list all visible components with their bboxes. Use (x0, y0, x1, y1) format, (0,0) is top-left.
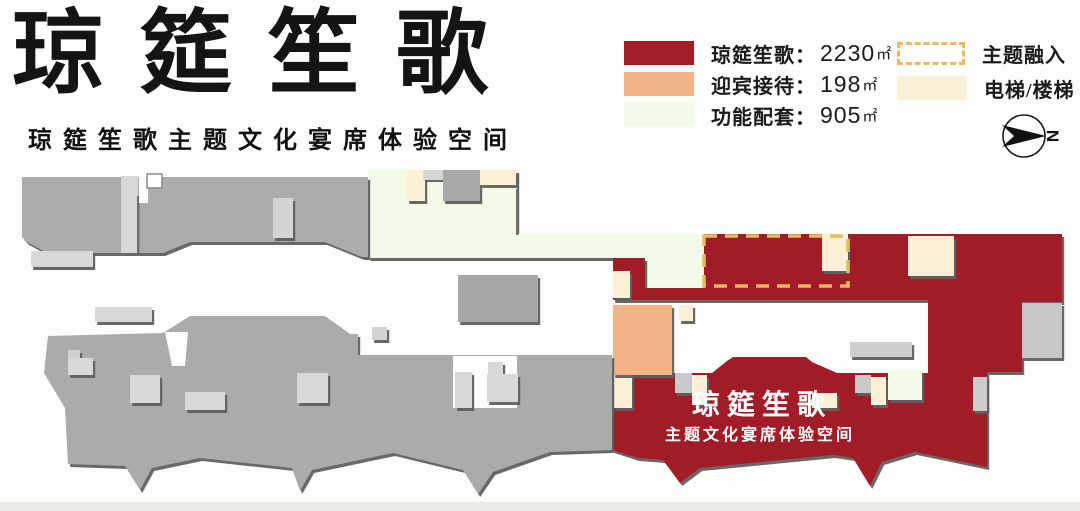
hall-subtitle: 主题文化宴席体验空间 (665, 425, 855, 444)
compass-north-label: N (1043, 130, 1062, 142)
small-room-outline (147, 174, 162, 188)
floor-plan: 琼筵笙歌 主题文化宴席体验空间 N (0, 0, 1080, 511)
stair-block (675, 373, 692, 393)
stair-block (423, 170, 445, 180)
elevator-block (613, 271, 630, 298)
stair-block (95, 307, 152, 322)
hall-title: 琼筵笙歌 (692, 388, 832, 421)
core-block (458, 275, 538, 322)
elevator-block (613, 373, 632, 408)
poster-canvas: 琼筵笙歌 琼筵笙歌主题文化宴席体验空间 琼筵笙歌： 2230 ㎡ 迎宾接待： 1… (0, 0, 1080, 511)
stair-block (488, 362, 503, 375)
elevator-block (822, 234, 848, 271)
elevator-block (871, 377, 886, 405)
corridor-strip (121, 176, 138, 253)
stair-block (31, 251, 93, 267)
elevator-block (908, 236, 954, 276)
elevator-block (480, 170, 516, 185)
stair-block (850, 342, 912, 357)
building-top-wing (22, 177, 368, 257)
stair-block (68, 358, 93, 375)
elevator-block (407, 170, 425, 201)
stair-block (185, 392, 225, 410)
stair-block (973, 377, 987, 411)
stair-block (487, 374, 518, 402)
wall-line (516, 189, 519, 235)
stair-block (455, 372, 472, 408)
elevator-block (130, 375, 160, 403)
building-lower-mass (44, 316, 612, 494)
stair-block (372, 327, 387, 340)
elevator-block (273, 198, 293, 238)
wall-line (137, 196, 140, 253)
stair-block (1022, 303, 1062, 358)
function-block (888, 370, 922, 400)
elevator-block (679, 305, 693, 321)
elevator-block (297, 373, 328, 403)
image-bottom-border (0, 502, 1080, 511)
north-arrow-icon (1002, 125, 1046, 147)
core-block (443, 170, 480, 201)
stair-block (855, 375, 871, 393)
reception-area (613, 305, 672, 375)
compass: N (1002, 115, 1062, 157)
